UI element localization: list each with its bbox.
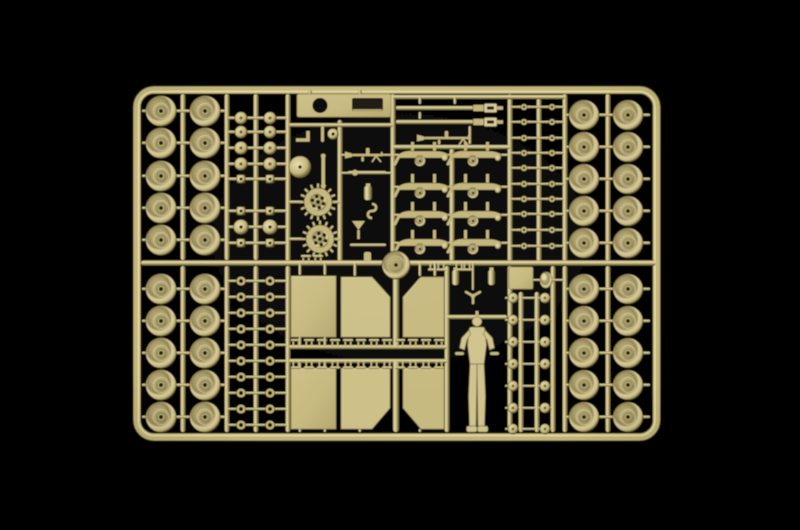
photo-stage (0, 0, 800, 530)
sprue (0, 0, 800, 530)
sprue-photo (0, 0, 800, 530)
